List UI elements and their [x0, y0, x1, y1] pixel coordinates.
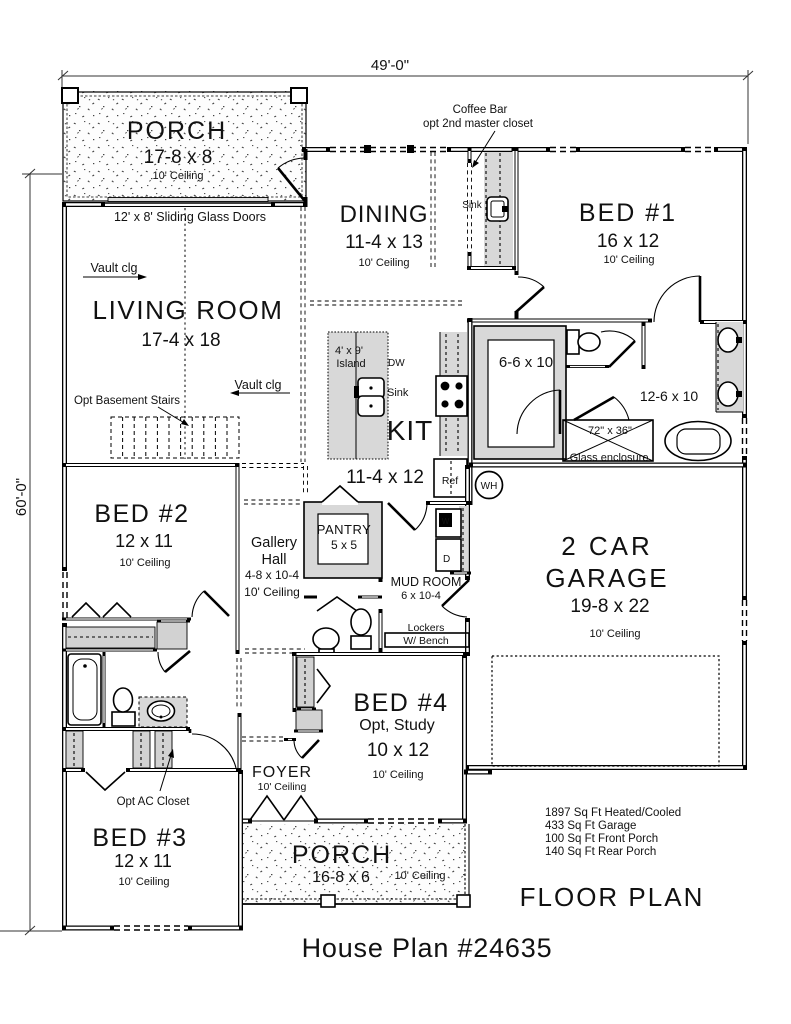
svg-text:10' Ceiling: 10' Ceiling — [119, 557, 170, 569]
svg-text:Sink: Sink — [387, 387, 409, 399]
svg-text:Vault clg: Vault clg — [234, 378, 281, 392]
svg-text:Sink: Sink — [462, 200, 482, 211]
svg-text:GARAGE: GARAGE — [545, 563, 668, 593]
svg-text:Island: Island — [336, 358, 365, 370]
svg-text:PANTRY: PANTRY — [317, 522, 372, 537]
svg-text:10' Ceiling: 10' Ceiling — [152, 170, 203, 182]
svg-text:PORCH: PORCH — [292, 841, 392, 869]
svg-text:5 x 5: 5 x 5 — [331, 538, 357, 552]
svg-text:11-4 x 12: 11-4 x 12 — [346, 467, 424, 488]
svg-text:10' Ceiling: 10' Ceiling — [258, 781, 307, 793]
svg-text:4' x 9': 4' x 9' — [335, 345, 363, 357]
svg-text:17-8 x 8: 17-8 x 8 — [144, 147, 213, 168]
svg-text:DINING: DINING — [340, 201, 429, 228]
svg-text:D: D — [443, 554, 450, 565]
svg-text:DW: DW — [388, 358, 405, 369]
svg-text:12' x 8' Sliding Glass Doors: 12' x 8' Sliding Glass Doors — [114, 210, 266, 224]
svg-text:Coffee Bar: Coffee Bar — [453, 104, 508, 116]
svg-text:12 x 11: 12 x 11 — [114, 851, 172, 871]
svg-text:PORCH: PORCH — [127, 117, 227, 145]
svg-text:FOYER: FOYER — [252, 764, 312, 781]
svg-text:10 x 12: 10 x 12 — [367, 740, 429, 761]
svg-text:BED #2: BED #2 — [94, 500, 189, 528]
svg-text:10' Ceiling: 10' Ceiling — [358, 257, 409, 269]
svg-text:2 CAR: 2 CAR — [561, 531, 653, 561]
svg-text:Opt Basement Stairs: Opt Basement Stairs — [74, 395, 180, 407]
svg-text:10' Ceiling: 10' Ceiling — [589, 628, 640, 640]
svg-text:LIVING ROOM: LIVING ROOM — [93, 295, 284, 325]
svg-text:12 x 11: 12 x 11 — [115, 531, 173, 551]
svg-text:Glass enclosure: Glass enclosure — [570, 452, 649, 464]
svg-text:Vault clg: Vault clg — [90, 261, 137, 275]
svg-text:10' Ceiling: 10' Ceiling — [603, 254, 654, 266]
svg-text:10' Ceiling: 10' Ceiling — [394, 870, 445, 882]
svg-text:W: W — [442, 517, 450, 526]
svg-text:Opt AC Closet: Opt AC Closet — [117, 796, 191, 808]
svg-text:Ref: Ref — [442, 475, 458, 487]
svg-text:BED #4: BED #4 — [353, 689, 448, 717]
svg-text:11-4 x 13: 11-4 x 13 — [345, 232, 423, 253]
svg-text:16 x 12: 16 x 12 — [597, 231, 659, 252]
svg-text:100 Sq Ft Front Porch: 100 Sq Ft Front Porch — [545, 833, 658, 845]
svg-text:BED #1: BED #1 — [579, 199, 677, 227]
svg-text:Gallery: Gallery — [251, 535, 298, 551]
svg-text:FLOOR PLAN: FLOOR PLAN — [520, 882, 705, 912]
svg-text:Hall: Hall — [262, 552, 287, 568]
svg-text:140 Sq Ft Rear Porch: 140 Sq Ft Rear Porch — [545, 846, 656, 858]
svg-text:opt 2nd master closet: opt 2nd master closet — [423, 118, 534, 130]
svg-text:Opt, Study: Opt, Study — [359, 717, 435, 734]
svg-text:1897 Sq Ft Heated/Cooled: 1897 Sq Ft Heated/Cooled — [545, 807, 681, 819]
svg-text:MUD ROOM: MUD ROOM — [391, 575, 462, 589]
svg-text:4-8 x 10-4: 4-8 x 10-4 — [245, 568, 299, 582]
svg-text:W/ Bench: W/ Bench — [403, 635, 449, 647]
svg-text:Lockers: Lockers — [408, 622, 445, 634]
svg-text:72" x 36": 72" x 36" — [588, 425, 632, 437]
svg-text:60'-0": 60'-0" — [13, 478, 30, 516]
svg-text:433 Sq Ft Garage: 433 Sq Ft Garage — [545, 820, 636, 832]
svg-text:17-4 x 18: 17-4 x 18 — [141, 330, 220, 351]
svg-text:10' Ceiling: 10' Ceiling — [244, 585, 300, 599]
svg-text:6 x 10-4: 6 x 10-4 — [401, 590, 441, 602]
svg-text:KIT: KIT — [387, 415, 434, 446]
svg-text:10' Ceiling: 10' Ceiling — [118, 876, 169, 888]
svg-text:49'-0": 49'-0" — [371, 57, 409, 74]
svg-text:6-6 x 10: 6-6 x 10 — [499, 354, 553, 371]
svg-text:House Plan #24635: House Plan #24635 — [302, 933, 553, 963]
svg-text:WH: WH — [481, 481, 498, 492]
svg-text:19-8 x 22: 19-8 x 22 — [570, 596, 649, 617]
svg-text:BED #3: BED #3 — [92, 824, 187, 852]
svg-text:12-6 x 10: 12-6 x 10 — [640, 388, 699, 404]
svg-text:16-8 x 6: 16-8 x 6 — [312, 869, 370, 886]
svg-text:10' Ceiling: 10' Ceiling — [372, 769, 423, 781]
